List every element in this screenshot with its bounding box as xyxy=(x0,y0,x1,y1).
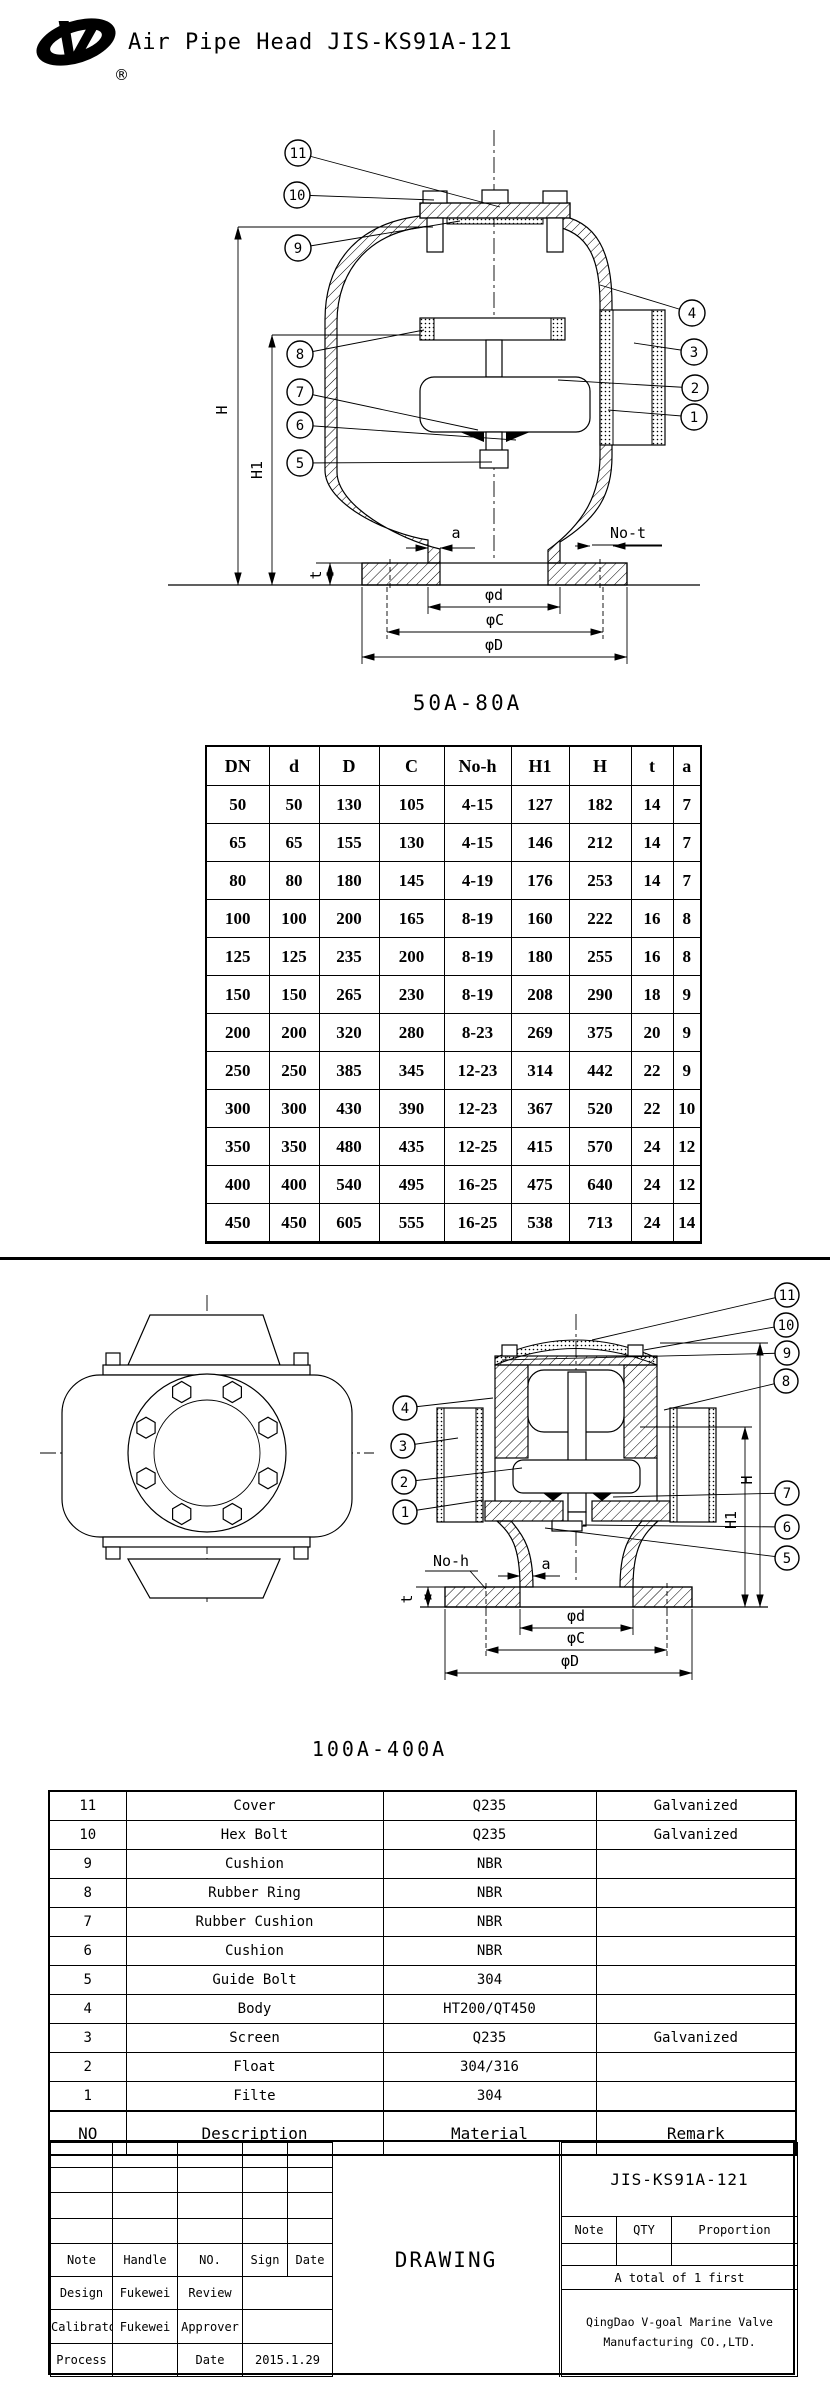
dim-table-cell: 8 xyxy=(673,900,701,938)
dim-table-cell: 150 xyxy=(269,976,319,1014)
company-name-line2: Manufacturing CO.,LTD. xyxy=(562,2333,797,2353)
parts-table-cell: Filte xyxy=(126,2082,383,2112)
parts-table-row: 4BodyHT200/QT450 xyxy=(49,1995,796,2024)
parts-table-cell: Galvanized xyxy=(596,1791,796,1821)
callout-leader xyxy=(545,1528,787,1558)
dim-table-cell: 250 xyxy=(206,1052,269,1090)
dim-table-cell: 300 xyxy=(206,1090,269,1128)
dim-table-cell: 8-19 xyxy=(444,938,511,976)
dim-phi-d-label: φd xyxy=(485,586,503,604)
dim-table-row: 1001002001658-19160222168 xyxy=(206,900,701,938)
calibrator-row: Calibrator Fukewei Approver xyxy=(51,2310,333,2343)
callout-number: 8 xyxy=(296,347,304,363)
dim-table-cell: 640 xyxy=(569,1166,631,1204)
dim-table-cell: 200 xyxy=(206,1014,269,1052)
parts-table-row: 6CushionNBR xyxy=(49,1937,796,1966)
callout-leader xyxy=(664,1381,786,1410)
dim-table-cell: 180 xyxy=(511,938,569,976)
parts-table-row: 5Guide Bolt304 xyxy=(49,1966,796,1995)
callout-number: 6 xyxy=(783,1520,791,1536)
handle-col-header: Handle xyxy=(113,2243,178,2276)
dim-table-col-header: No-h xyxy=(444,746,511,786)
title-block-right: JIS-KS91A-121 Note QTY Proportion A tota… xyxy=(561,2142,798,2377)
callout-number: 4 xyxy=(401,1401,409,1417)
dim-table-cell: 9 xyxy=(673,1052,701,1090)
dim-table-cell: 235 xyxy=(319,938,379,976)
parts-table-cell: 4 xyxy=(49,1995,126,2024)
dim-table-cell: 8 xyxy=(673,938,701,976)
drawing-label: DRAWING xyxy=(332,2142,560,2377)
registered-mark: ® xyxy=(114,66,129,84)
dim-table-row: 50501301054-15127182147 xyxy=(206,786,701,824)
dim-table-row: 65651551304-15146212147 xyxy=(206,824,701,862)
callout-number: 9 xyxy=(783,1346,791,1362)
date-label: Date xyxy=(178,2343,243,2376)
dim-table-cell: 155 xyxy=(319,824,379,862)
drawing-number-row: JIS-KS91A-121 xyxy=(562,2143,798,2217)
parts-table-cell: Hex Bolt xyxy=(126,1821,383,1850)
parts-table-row: 1Filte304 xyxy=(49,2082,796,2112)
dim-table-cell: 8-19 xyxy=(444,976,511,1014)
title-block-empty-row xyxy=(51,2218,333,2243)
callout-number: 5 xyxy=(296,456,304,472)
callout-number: 11 xyxy=(779,1288,796,1304)
dim-table-cell: 314 xyxy=(511,1052,569,1090)
dim-table-cell: 105 xyxy=(379,786,444,824)
dim-table-cell: 713 xyxy=(569,1204,631,1243)
hex-bolt-icon xyxy=(259,1468,277,1489)
parts-table-cell: 304 xyxy=(383,2082,596,2112)
parts-table-row: 2Float304/316 xyxy=(49,2053,796,2082)
dim-table-cell: 350 xyxy=(206,1128,269,1166)
dim2-phi-dd-label: φD xyxy=(561,1652,579,1670)
dim-table-cell: 200 xyxy=(319,900,379,938)
parts-table-cell: 5 xyxy=(49,1966,126,1995)
dim2-h-label: H xyxy=(738,1475,756,1484)
dim-table-row: 30030043039012-233675202210 xyxy=(206,1090,701,1128)
dim-table-col-header: H xyxy=(569,746,631,786)
callout-number: 10 xyxy=(289,188,306,204)
dim-table-cell: 125 xyxy=(206,938,269,976)
dim-table-cell: 160 xyxy=(511,900,569,938)
callout-number: 1 xyxy=(401,1505,409,1521)
parts-table-cell: Float xyxy=(126,2053,383,2082)
dim-table-cell: 450 xyxy=(269,1204,319,1243)
callout-number: 7 xyxy=(296,385,304,401)
callout-leader xyxy=(583,1525,787,1527)
dim-table-row: 1501502652308-19208290189 xyxy=(206,976,701,1014)
dim-table-cell: 345 xyxy=(379,1052,444,1090)
callout-number: 8 xyxy=(782,1374,790,1390)
section-view xyxy=(420,1314,768,1611)
caption-50a-80a: 50A-80A xyxy=(360,691,575,715)
review-label: Review xyxy=(178,2277,243,2310)
dim-table-cell: 435 xyxy=(379,1128,444,1166)
dim-table-cell: 130 xyxy=(379,824,444,862)
callout-leader xyxy=(600,285,692,313)
dim2-t-label: t xyxy=(398,1594,416,1603)
parts-table-cell: NBR xyxy=(383,1908,596,1937)
dim-table-cell: 16 xyxy=(631,900,673,938)
dim-table-row: 45045060555516-255387132414 xyxy=(206,1204,701,1243)
parts-table-cell xyxy=(596,1995,796,2024)
parts-table-cell: 8 xyxy=(49,1879,126,1908)
dimension-table: DNdDCNo-hH1Hta 50501301054-1512718214765… xyxy=(205,745,702,1244)
dim-table-row: 25025038534512-23314442229 xyxy=(206,1052,701,1090)
dim-table-cell: 24 xyxy=(631,1204,673,1243)
design-label: Design xyxy=(51,2277,113,2310)
callout-number: 10 xyxy=(778,1318,795,1334)
dim-table-cell: 450 xyxy=(206,1204,269,1243)
dimension-lines: H H1 a t No-t φd φC φD xyxy=(213,227,662,664)
callout-number: 6 xyxy=(296,418,304,434)
dim-table-cell: 146 xyxy=(511,824,569,862)
dim-table-cell: 390 xyxy=(379,1090,444,1128)
process-label: Process xyxy=(51,2343,113,2376)
parts-table-cell: NBR xyxy=(383,1850,596,1879)
title-block-empty-row xyxy=(51,2168,333,2193)
dim-table-cell: 605 xyxy=(319,1204,379,1243)
parts-table-cell xyxy=(596,1908,796,1937)
parts-table-cell: 6 xyxy=(49,1937,126,1966)
date-col-header: Date xyxy=(288,2243,333,2276)
dim-table-cell: 18 xyxy=(631,976,673,1014)
parts-table-cell: Cushion xyxy=(126,1937,383,1966)
dim-table-cell: 7 xyxy=(673,786,701,824)
company-row: QingDao V-goal Marine Valve Manufacturin… xyxy=(562,2290,798,2377)
parts-table-cell: HT200/QT450 xyxy=(383,1995,596,2024)
svg-text:V: V xyxy=(54,11,102,76)
dim-table-cell: 12 xyxy=(673,1166,701,1204)
dim-table-cell: 280 xyxy=(379,1014,444,1052)
callout-leader xyxy=(592,1295,787,1340)
dim2-a-label: a xyxy=(541,1555,550,1573)
dim-table-col-header: d xyxy=(269,746,319,786)
callout-leader xyxy=(300,330,424,354)
dim-table-cell: 165 xyxy=(379,900,444,938)
title-block-empty-row xyxy=(51,2143,333,2168)
dim-table-col-header: a xyxy=(673,746,701,786)
dim-table-cell: 14 xyxy=(631,824,673,862)
dim-t-label: t xyxy=(307,570,325,579)
dim-table-cell: 127 xyxy=(511,786,569,824)
dim-table-cell: 80 xyxy=(206,862,269,900)
callout-number: 3 xyxy=(399,1439,407,1455)
hex-bolt-icon xyxy=(223,1382,241,1403)
dim-table-cell: 300 xyxy=(269,1090,319,1128)
dim-table-cell: 14 xyxy=(631,786,673,824)
parts-table-cell: 304/316 xyxy=(383,2053,596,2082)
qty-header-row: Note QTY Proportion xyxy=(562,2217,798,2244)
dim-table-cell: 9 xyxy=(673,1014,701,1052)
front-view xyxy=(40,1295,374,1602)
dim-table-cell: 145 xyxy=(379,862,444,900)
approver-label: Approver xyxy=(178,2310,243,2343)
dim-table-cell: 7 xyxy=(673,862,701,900)
parts-table-cell: 10 xyxy=(49,1821,126,1850)
dim-table-cell: 4-15 xyxy=(444,824,511,862)
parts-table-row: 3ScreenQ235Galvanized xyxy=(49,2024,796,2053)
parts-table-cell: Q235 xyxy=(383,2024,596,2053)
process-row: Process Date 2015.1.29 xyxy=(51,2343,333,2376)
dim-table-cell: 65 xyxy=(206,824,269,862)
parts-table-cell: 7 xyxy=(49,1908,126,1937)
callout-number: 11 xyxy=(290,146,307,162)
dim-table-cell: 150 xyxy=(206,976,269,1014)
hex-bolt-icon xyxy=(173,1382,191,1403)
parts-table-cell: 1 xyxy=(49,2082,126,2112)
dim-table-cell: 10 xyxy=(673,1090,701,1128)
hex-bolt-icon xyxy=(137,1468,155,1489)
parts-table-cell: 304 xyxy=(383,1966,596,1995)
total-note: A total of 1 first xyxy=(562,2266,798,2290)
dim2-phi-d-label: φd xyxy=(567,1607,585,1625)
dim-table-cell: 367 xyxy=(511,1090,569,1128)
dim-table-cell: 20 xyxy=(631,1014,673,1052)
proportion-col-header: Proportion xyxy=(672,2217,798,2244)
dim-table-cell: 8-23 xyxy=(444,1014,511,1052)
dim-table-cell: 100 xyxy=(269,900,319,938)
parts-table-cell xyxy=(596,1879,796,1908)
title-block: Note Handle NO. Sign Date Design Fukewei… xyxy=(48,2140,795,2375)
dim-table-cell: 430 xyxy=(319,1090,379,1128)
company-name-line1: QingDao V-goal Marine Valve xyxy=(562,2313,797,2333)
dim-table-cell: 65 xyxy=(269,824,319,862)
sign-col-header: Sign xyxy=(243,2243,288,2276)
dim-table-cell: 50 xyxy=(269,786,319,824)
parts-table-cell: Rubber Ring xyxy=(126,1879,383,1908)
dim-table-cell: 200 xyxy=(269,1014,319,1052)
callout-leader xyxy=(297,195,434,200)
dim-table-cell: 24 xyxy=(631,1128,673,1166)
dim-table-cell: 538 xyxy=(511,1204,569,1243)
calibrator-name: Fukewei xyxy=(113,2310,178,2343)
dim-table-row: 35035048043512-254155702412 xyxy=(206,1128,701,1166)
screen-cartridge xyxy=(600,310,665,445)
dim-table-cell: 222 xyxy=(569,900,631,938)
callout-number: 7 xyxy=(783,1486,791,1502)
dim-no-t-label: No-t xyxy=(610,524,646,542)
parts-table-cell: Screen xyxy=(126,2024,383,2053)
calibrator-label: Calibrator xyxy=(51,2310,113,2343)
dim-table-cell: 475 xyxy=(511,1166,569,1204)
dim-table-cell: 255 xyxy=(569,938,631,976)
parts-table-cell: 11 xyxy=(49,1791,126,1821)
dim-table-row: 80801801454-19176253147 xyxy=(206,862,701,900)
parts-table-cell xyxy=(596,1966,796,1995)
no-col-header: NO. xyxy=(178,2243,243,2276)
dim-table-cell: 12 xyxy=(673,1128,701,1166)
dim-table-cell: 520 xyxy=(569,1090,631,1128)
dim-table-row: 1251252352008-19180255168 xyxy=(206,938,701,976)
dim-table-col-header: C xyxy=(379,746,444,786)
callout-leader xyxy=(644,1325,786,1350)
dim-table-cell: 22 xyxy=(631,1090,673,1128)
parts-table-cell: 9 xyxy=(49,1850,126,1879)
dim-table-cell: 14 xyxy=(673,1204,701,1243)
parts-table-row: 10Hex BoltQ235Galvanized xyxy=(49,1821,796,1850)
dim-table-cell: 230 xyxy=(379,976,444,1014)
dim-table-cell: 555 xyxy=(379,1204,444,1243)
cover-assembly xyxy=(420,190,570,252)
dim-table-row: 40040054049516-254756402412 xyxy=(206,1166,701,1204)
dim-table-cell: 80 xyxy=(269,862,319,900)
dim-table-row: 2002003202808-23269375209 xyxy=(206,1014,701,1052)
hex-bolt-icon xyxy=(173,1504,191,1525)
dim-table-col-header: H1 xyxy=(511,746,569,786)
dim2-phi-c-label: φC xyxy=(567,1629,585,1647)
dim-phi-c-label: φC xyxy=(486,611,504,629)
dim-table-cell: 540 xyxy=(319,1166,379,1204)
parts-table-cell: Q235 xyxy=(383,1821,596,1850)
parts-table-cell xyxy=(596,2082,796,2112)
dim-table-cell: 320 xyxy=(319,1014,379,1052)
dim-table-cell: 100 xyxy=(206,900,269,938)
date-value: 2015.1.29 xyxy=(243,2343,333,2376)
dim-table-cell: 385 xyxy=(319,1052,379,1090)
dim-table-cell: 12-23 xyxy=(444,1090,511,1128)
design-name: Fukewei xyxy=(113,2277,178,2310)
drawing-100a-400a: t No-h a H H1 φd φC φD 4321111098765 xyxy=(0,1280,830,1720)
callout-number: 9 xyxy=(294,241,302,257)
dim-table-cell: 9 xyxy=(673,976,701,1014)
section-divider xyxy=(0,1257,830,1260)
dim-table-cell: 182 xyxy=(569,786,631,824)
callout-number: 5 xyxy=(783,1551,791,1567)
dim-table-cell: 442 xyxy=(569,1052,631,1090)
dim-h-label: H xyxy=(213,405,231,414)
page-title: Air Pipe Head JIS-KS91A-121 xyxy=(128,30,513,55)
parts-table-cell xyxy=(596,1937,796,1966)
dim-table-cell: 250 xyxy=(269,1052,319,1090)
dim-table-cell: 208 xyxy=(511,976,569,1014)
dim-table-cell: 16 xyxy=(631,938,673,976)
parts-table-body: 11CoverQ235Galvanized10Hex BoltQ235Galva… xyxy=(49,1791,796,2155)
company-logo-icon: V ® xyxy=(26,4,130,84)
dim-table-cell: 130 xyxy=(319,786,379,824)
parts-table-cell: Guide Bolt xyxy=(126,1966,383,1995)
note-col-header: Note xyxy=(51,2243,113,2276)
dimension-table-body: 50501301054-1512718214765651551304-15146… xyxy=(206,786,701,1243)
dim-table-col-header: t xyxy=(631,746,673,786)
qty-empty-row xyxy=(562,2244,798,2266)
dim-table-cell: 16-25 xyxy=(444,1204,511,1243)
dim-table-cell: 350 xyxy=(269,1128,319,1166)
hex-bolt-icon xyxy=(259,1417,277,1438)
dim-table-cell: 24 xyxy=(631,1166,673,1204)
dim-table-cell: 8-19 xyxy=(444,900,511,938)
dim-table-col-header: DN xyxy=(206,746,269,786)
dim-table-cell: 14 xyxy=(631,862,673,900)
dim-table-cell: 180 xyxy=(319,862,379,900)
qty-col-header: QTY xyxy=(617,2217,672,2244)
parts-table-row: 7Rubber CushionNBR xyxy=(49,1908,796,1937)
dim2-no-h-label: No-h xyxy=(433,1552,469,1570)
dim-table-cell: 12-25 xyxy=(444,1128,511,1166)
parts-table-cell xyxy=(596,2053,796,2082)
callout-number: 2 xyxy=(691,381,699,397)
callout-leader xyxy=(405,1398,493,1408)
parts-table-cell: Galvanized xyxy=(596,2024,796,2053)
dim-table-cell: 212 xyxy=(569,824,631,862)
caption-100a-400a: 100A-400A xyxy=(272,1737,487,1761)
parts-table-cell: NBR xyxy=(383,1879,596,1908)
dim-table-cell: 400 xyxy=(206,1166,269,1204)
hex-bolt-icon xyxy=(137,1417,155,1438)
dim-table-cell: 290 xyxy=(569,976,631,1014)
dim-table-cell: 176 xyxy=(511,862,569,900)
parts-table-cell: 3 xyxy=(49,2024,126,2053)
dim-table-cell: 265 xyxy=(319,976,379,1014)
callout-number: 4 xyxy=(688,306,696,322)
dim-table-cell: 200 xyxy=(379,938,444,976)
parts-table: 11CoverQ235Galvanized10Hex BoltQ235Galva… xyxy=(48,1790,797,2156)
dim-table-cell: 4-19 xyxy=(444,862,511,900)
callout-number: 1 xyxy=(690,410,698,426)
dim-table-cell: 400 xyxy=(269,1166,319,1204)
callout-number: 2 xyxy=(400,1475,408,1491)
callout-number: 3 xyxy=(690,345,698,361)
dim-table-cell: 495 xyxy=(379,1166,444,1204)
parts-table-cell: Galvanized xyxy=(596,1821,796,1850)
dim-table-header-row: DNdDCNo-hH1Hta xyxy=(206,746,701,786)
dim-table-cell: 12-23 xyxy=(444,1052,511,1090)
parts-table-row: 11CoverQ235Galvanized xyxy=(49,1791,796,1821)
dim-table-col-header: D xyxy=(319,746,379,786)
dim-phi-dd-label: φD xyxy=(485,636,503,654)
parts-table-row: 9CushionNBR xyxy=(49,1850,796,1879)
dim-table-cell: 480 xyxy=(319,1128,379,1166)
total-row: A total of 1 first xyxy=(562,2266,798,2290)
parts-table-cell: 2 xyxy=(49,2053,126,2082)
title-block-header-row: Note Handle NO. Sign Date xyxy=(51,2243,333,2276)
dim-table-cell: 22 xyxy=(631,1052,673,1090)
dim-table-cell: 570 xyxy=(569,1128,631,1166)
dim-table-cell: 125 xyxy=(269,938,319,976)
dim-table-cell: 7 xyxy=(673,824,701,862)
note2-col-header: Note xyxy=(562,2217,617,2244)
dim-table-cell: 269 xyxy=(511,1014,569,1052)
parts-table-row: 8Rubber RingNBR xyxy=(49,1879,796,1908)
title-block-empty-row xyxy=(51,2193,333,2218)
hex-bolt-icon xyxy=(223,1504,241,1525)
parts-table-cell: Q235 xyxy=(383,1791,596,1821)
drawing-50a-80a: H H1 a t No-t φd φC φD 1110987654321 xyxy=(0,90,830,690)
dim-h1-label: H1 xyxy=(248,461,266,479)
dim-table-cell: 16-25 xyxy=(444,1166,511,1204)
parts-table-cell: Cover xyxy=(126,1791,383,1821)
parts-table-cell: Body xyxy=(126,1995,383,2024)
parts-table-cell: Rubber Cushion xyxy=(126,1908,383,1937)
dim-table-cell: 415 xyxy=(511,1128,569,1166)
float-assembly xyxy=(420,318,590,468)
title-block-left: Note Handle NO. Sign Date Design Fukewei… xyxy=(50,2142,333,2377)
dim-table-cell: 4-15 xyxy=(444,786,511,824)
parts-table-cell xyxy=(596,1850,796,1879)
dim-table-cell: 375 xyxy=(569,1014,631,1052)
dim-a-label: a xyxy=(451,524,460,542)
dim-table-cell: 50 xyxy=(206,786,269,824)
parts-table-cell: NBR xyxy=(383,1937,596,1966)
drawing-number: JIS-KS91A-121 xyxy=(562,2143,798,2217)
dim-table-cell: 253 xyxy=(569,862,631,900)
parts-table-cell: Cushion xyxy=(126,1850,383,1879)
design-row: Design Fukewei Review xyxy=(51,2277,333,2310)
